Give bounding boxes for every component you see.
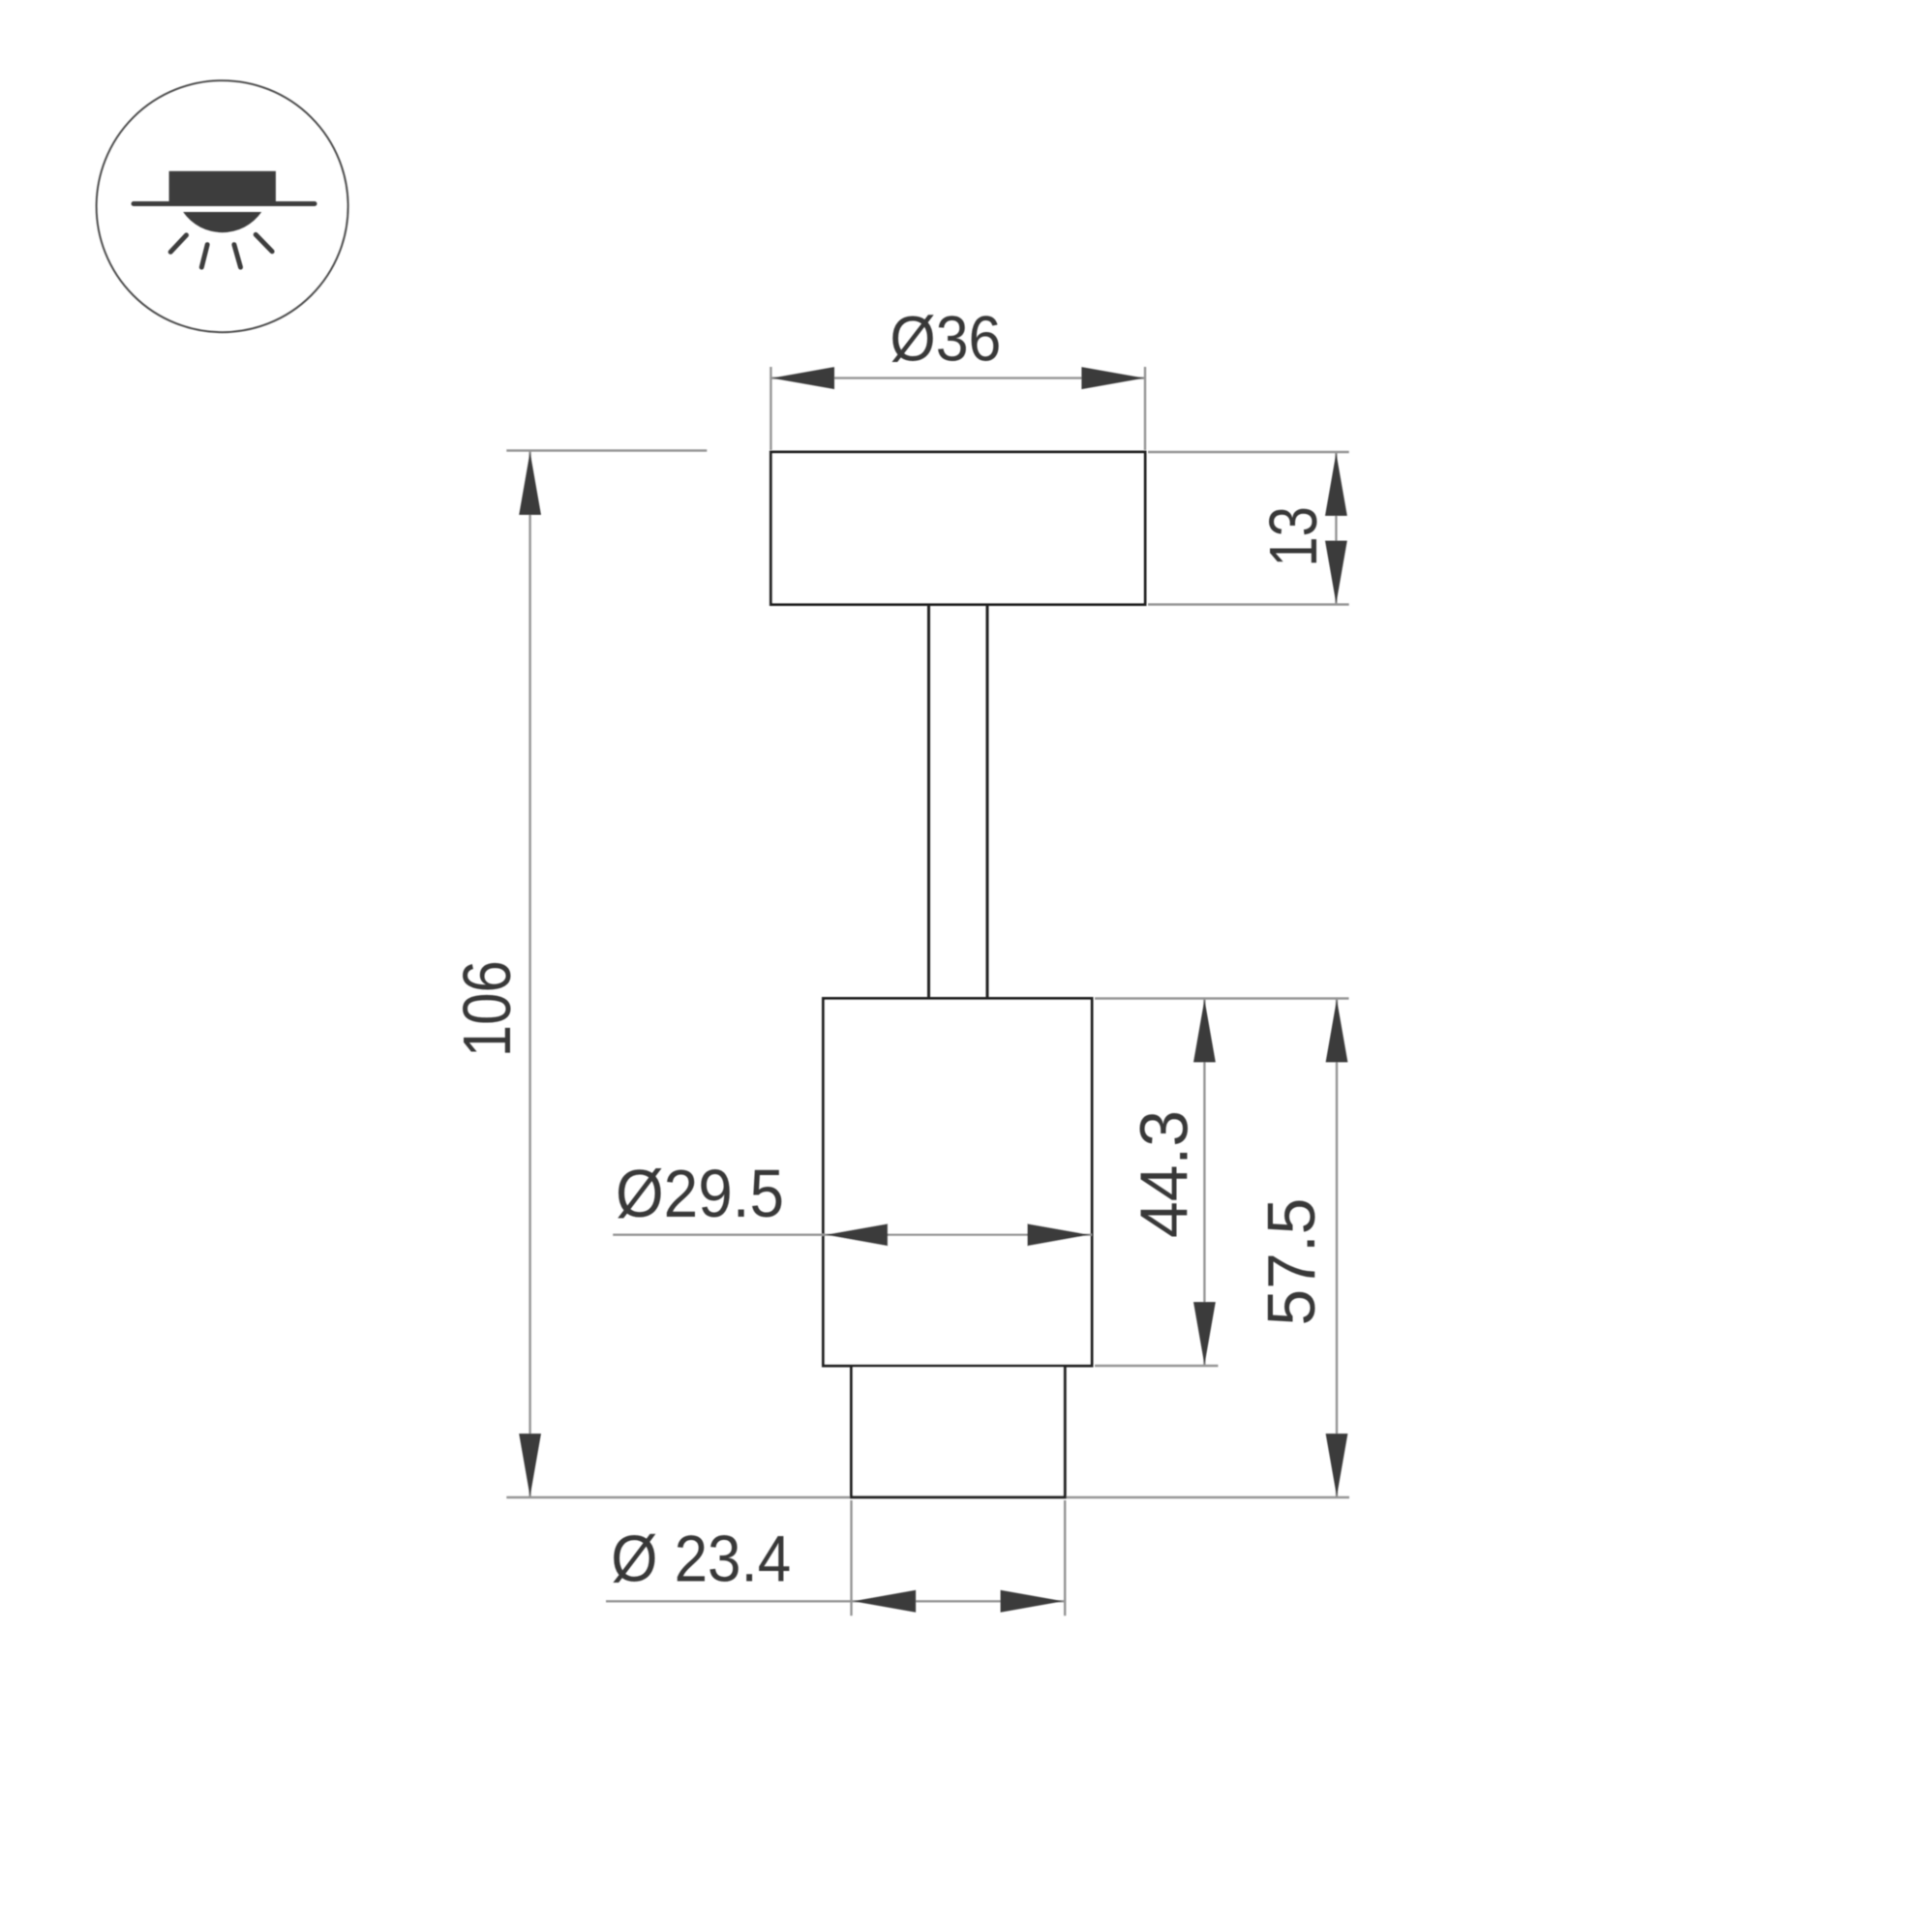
svg-text:106: 106 (449, 960, 525, 1057)
svg-text:Ø29.5: Ø29.5 (616, 1156, 784, 1231)
svg-text:Ø 23.4: Ø 23.4 (611, 1523, 791, 1596)
svg-text:13: 13 (1255, 506, 1331, 567)
svg-text:44.3: 44.3 (1126, 1110, 1201, 1238)
svg-text:Ø36: Ø36 (890, 303, 1001, 375)
svg-text:57.5: 57.5 (1253, 1198, 1329, 1326)
